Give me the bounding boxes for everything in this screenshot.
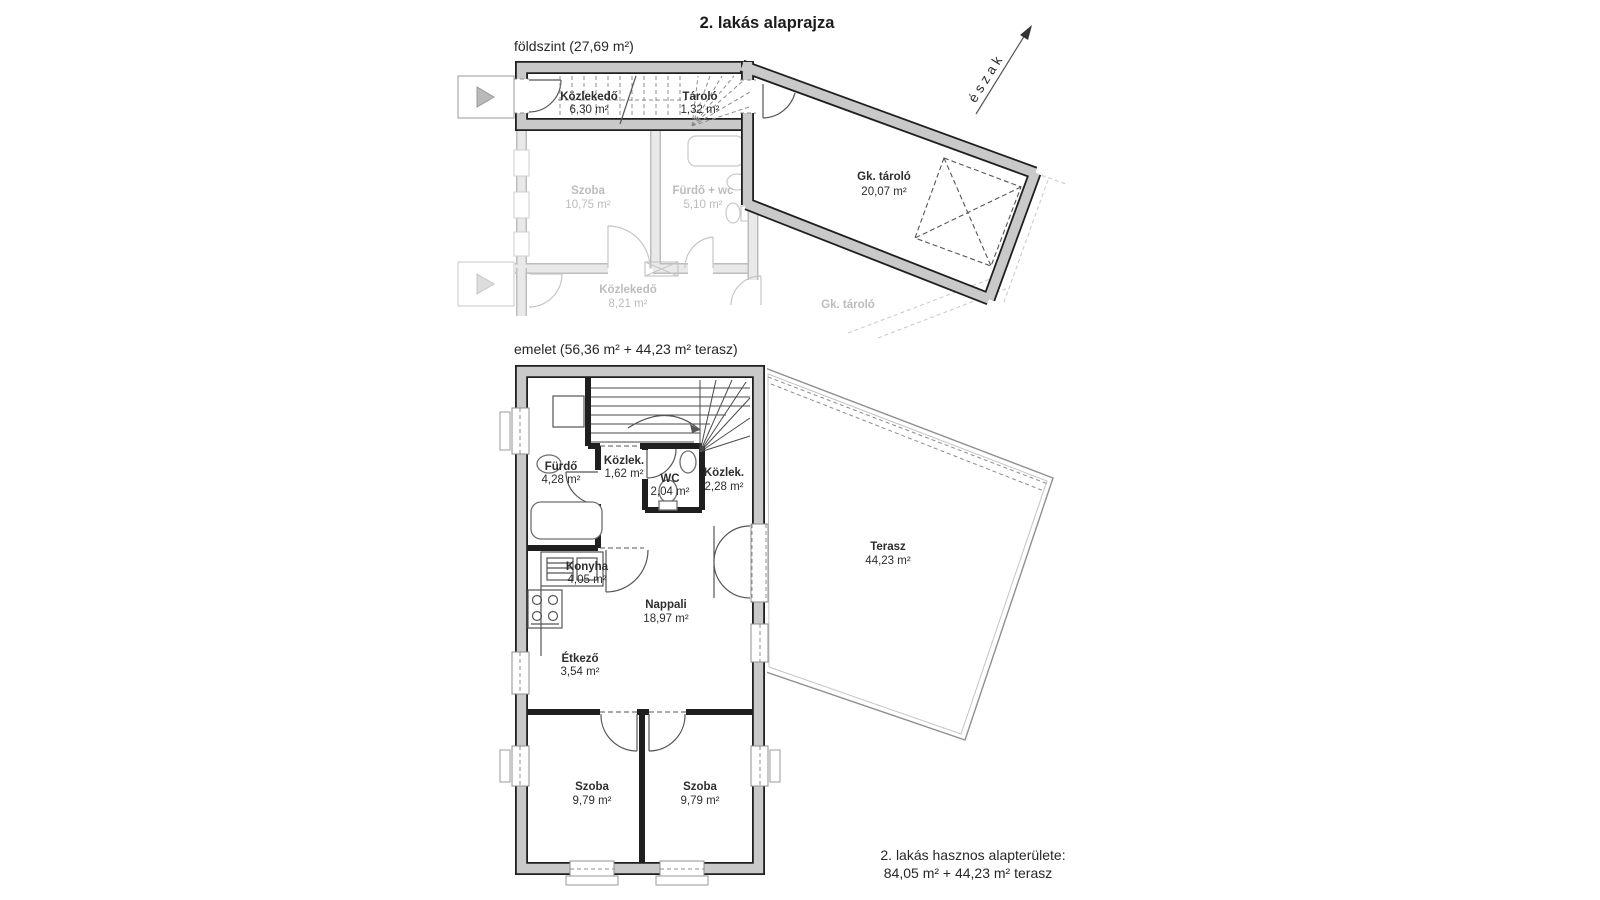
uf-furdo-area: 4,28 m² bbox=[542, 474, 581, 486]
gf-neighbor-window bbox=[514, 192, 529, 218]
gf-entry-opening bbox=[513, 79, 529, 113]
gf-entry-marker bbox=[458, 76, 514, 118]
summary-line1: 2. lakás hasznos alapterülete: bbox=[880, 847, 1065, 863]
uf-konyha-area: 4,05 m² bbox=[568, 574, 607, 586]
gf-kozlekedo2-area: 8,21 m² bbox=[609, 298, 648, 310]
uf-terasz-area: 44,23 m² bbox=[865, 555, 911, 567]
uf-wc-area: 2,04 m² bbox=[651, 486, 690, 498]
gf-neighbor-garage-label: Gk. tároló bbox=[821, 299, 875, 311]
gf-furdo-wc-area: 5,10 m² bbox=[684, 199, 723, 211]
gf-bathtub bbox=[688, 136, 744, 166]
gf-kozlekedo-area: 6,30 m² bbox=[570, 104, 609, 116]
uf-toilet-tank bbox=[659, 501, 677, 510]
north-arrow: észak bbox=[965, 25, 1032, 114]
uf-terrace-door-opening bbox=[751, 524, 768, 602]
gf-garage-label: Gk. tároló bbox=[857, 171, 911, 183]
uf-etkezo-area: 3,54 m² bbox=[561, 666, 600, 678]
uf-szoba2-label: Szoba bbox=[683, 781, 717, 793]
gf-szoba-area: 10,75 m² bbox=[565, 199, 611, 211]
gf-neighbor-window bbox=[514, 150, 529, 176]
uf-nappali-area: 18,97 m² bbox=[643, 613, 689, 625]
uf-nappali-label: Nappali bbox=[645, 599, 687, 611]
gf-szoba-label: Szoba bbox=[571, 185, 605, 197]
uf-konyha-label: Konyha bbox=[566, 561, 609, 573]
uf-kozlek2-area: 2,28 m² bbox=[705, 481, 744, 493]
gf-tarolo-area: 1,32 m² bbox=[681, 104, 720, 116]
gf-toilet bbox=[726, 203, 740, 223]
gf-neighbor-window bbox=[514, 232, 529, 256]
uf-kozlek2-label: Közlek. bbox=[704, 467, 744, 479]
uf-furdo-label: Fürdő bbox=[545, 461, 578, 473]
upper-floor-label: emelet (56,36 m² + 44,23 m² terasz) bbox=[514, 341, 738, 357]
gf-entry-marker-neighbor bbox=[458, 262, 514, 306]
uf-etkezo-label: Étkező bbox=[561, 652, 598, 665]
uf-wc-label: WC bbox=[660, 473, 679, 485]
ground-floor-label: földszint (27,69 m²) bbox=[514, 38, 634, 54]
floor-plan-svg: 2. lakás alaprajza földszint (27,69 m²) bbox=[0, 0, 1600, 900]
uf-szoba2-area: 9,79 m² bbox=[681, 795, 720, 807]
uf-window-szoba2 bbox=[751, 746, 768, 786]
gf-neighbor-door bbox=[731, 276, 761, 305]
gf-furdo-wc-label: Fürdő + wc bbox=[672, 185, 734, 197]
summary-line2: 84,05 m² + 44,23 m² terasz bbox=[884, 865, 1052, 881]
uf-terasz-label: Terasz bbox=[870, 541, 906, 553]
gf-garage-area: 20,07 m² bbox=[861, 186, 907, 198]
gf-kozlekedo2-label: Közlekedő bbox=[599, 284, 657, 296]
floor-plan-page: 2. lakás alaprajza földszint (27,69 m²) bbox=[0, 0, 1600, 900]
gf-neighbor-door bbox=[529, 274, 562, 307]
gf-kozlekedo-label: Közlekedő bbox=[560, 91, 618, 103]
summary-block: 2. lakás hasznos alapterülete: 84,05 m² … bbox=[880, 847, 1065, 881]
north-arrow-head bbox=[1020, 25, 1032, 40]
uf-szoba1-label: Szoba bbox=[575, 781, 609, 793]
uf-terrace: Terasz 44,23 m² bbox=[765, 368, 1053, 740]
uf-window-szoba1 bbox=[512, 746, 529, 786]
gf-tarolo-label: Tároló bbox=[682, 91, 717, 103]
uf-kozlek1-label: Közlek. bbox=[604, 455, 644, 467]
uf-kozlek1-area: 1,62 m² bbox=[605, 468, 644, 480]
page-title: 2. lakás alaprajza bbox=[700, 14, 836, 32]
uf-szoba1-area: 9,79 m² bbox=[573, 795, 612, 807]
uf-terrace-window bbox=[751, 624, 768, 662]
uf-bathtub bbox=[531, 502, 602, 539]
upper-floor-plan: emelet (56,36 m² + 44,23 m² terasz) Tera… bbox=[500, 341, 1053, 885]
uf-wc-sink bbox=[680, 451, 696, 473]
